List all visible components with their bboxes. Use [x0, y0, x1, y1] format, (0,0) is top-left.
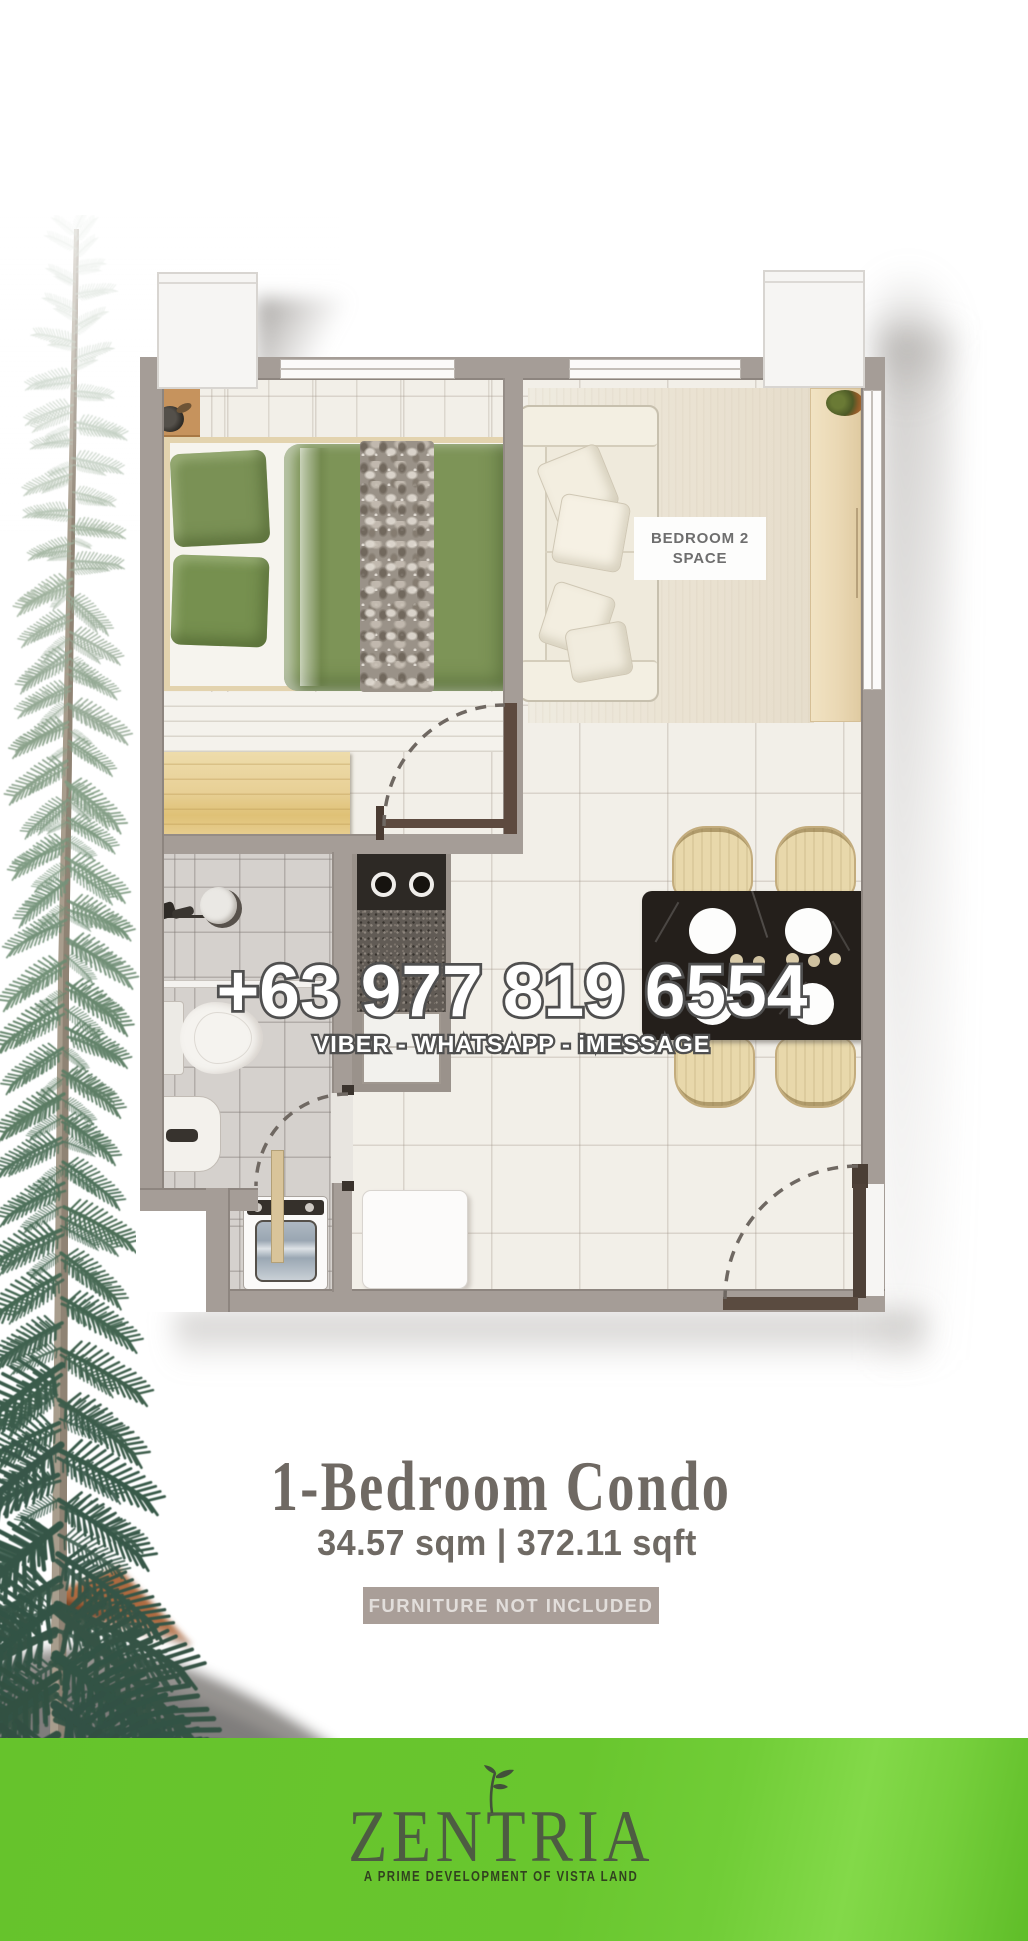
svg-text:VIBER - WHATSAPP - iMESSAGE: VIBER - WHATSAPP - iMESSAGE — [314, 1031, 711, 1057]
svg-text:+63 977 819 6554: +63 977 819 6554 — [217, 951, 808, 1032]
